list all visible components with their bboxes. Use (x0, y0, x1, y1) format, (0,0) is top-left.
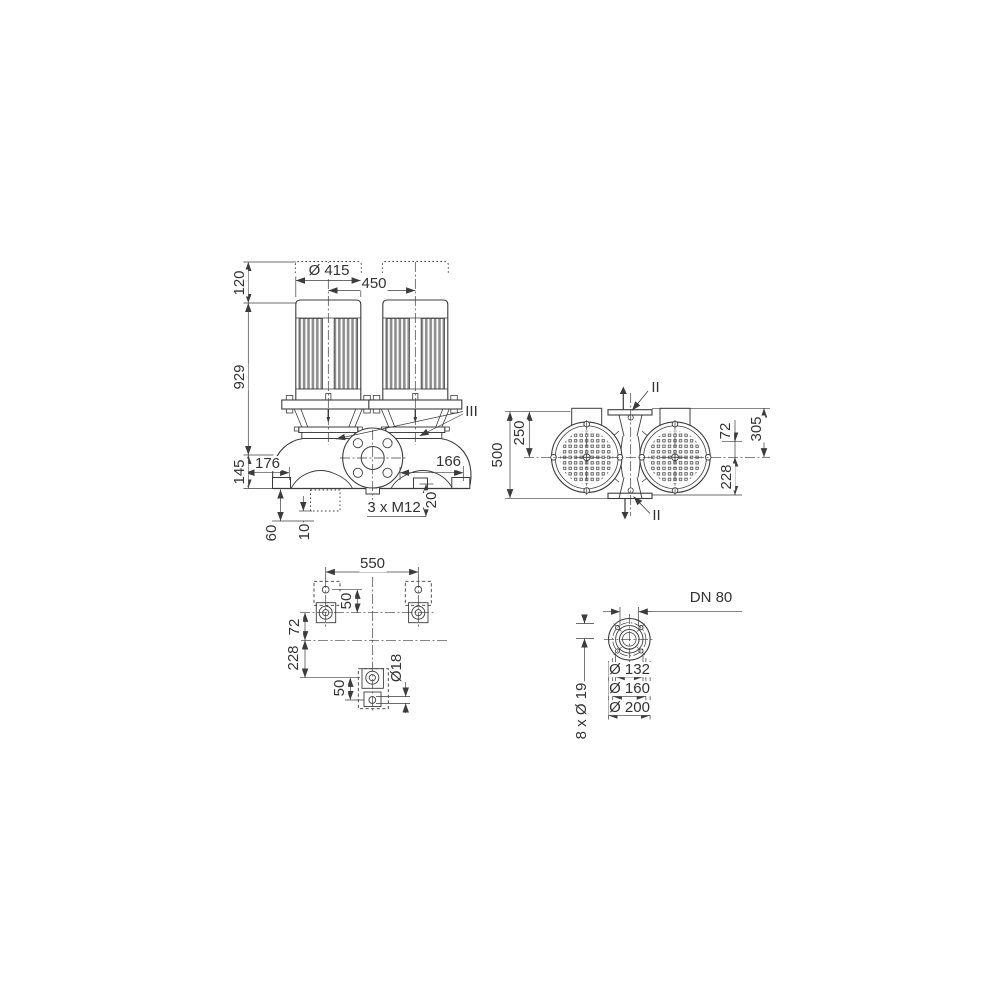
dim-axis-to-front-foot: 228 (286, 644, 302, 671)
top-view-drawing (505, 387, 770, 520)
dim-motor-spacing: 450 (360, 276, 387, 292)
dim-overall-width: 500 (490, 441, 506, 468)
dim-axis-to-foot: 228 (719, 463, 735, 490)
dim-offset-right: 166 (435, 454, 462, 470)
dim-motor-height: 929 (232, 363, 248, 390)
dim-motor-diameter: Ø 415 (308, 263, 351, 279)
dim-base-height: 145 (232, 458, 248, 485)
drawing-canvas (0, 0, 1000, 1000)
dim-raised-face-diameter: Ø 132 (608, 662, 651, 678)
section-label-III: III (464, 404, 479, 420)
dim-drain-offset2: 10 (297, 523, 313, 542)
top-port-flange (608, 410, 652, 415)
dim-axis-offset-plan: 72 (287, 617, 303, 636)
flange-dimensions (576, 607, 742, 720)
label-nominal-diameter: DN 80 (689, 590, 734, 606)
section-label-II-bottom: II (651, 508, 661, 524)
bottom-port-flange (608, 493, 652, 498)
dim-hole-diameter: Ø18 (389, 652, 405, 682)
dim-foot-threads: 3 x M12 (366, 500, 421, 516)
pump-dimensional-drawing: 120 929 145 Ø 415 450 176 166 20 3 x M12… (0, 0, 1000, 1000)
foot-pad-front (358, 669, 388, 709)
foot-pad-left (314, 581, 340, 622)
section-label-II-top: II (650, 380, 660, 396)
dim-bolt-circle-diameter: Ø 160 (608, 681, 651, 697)
dim-axis-offset: 72 (718, 421, 734, 440)
clearance-box (311, 490, 341, 511)
front-elevation-drawing (244, 262, 471, 528)
dim-center-to-edge: 250 (512, 419, 528, 446)
dim-outer-diameter: Ø 200 (608, 700, 651, 716)
dim-hole-spacing-top: 50 (339, 592, 355, 611)
dim-foot-thread-depth: 20 (424, 490, 440, 509)
dim-offset-left: 176 (254, 456, 281, 472)
pump-foot-mid (414, 478, 428, 489)
pump-foot-left (273, 478, 291, 489)
flange-detail-drawing (576, 607, 742, 720)
dim-hole-spacing-bottom: 50 (332, 679, 348, 698)
dim-bolt-spacing: 550 (359, 556, 386, 572)
dim-flange-to-axis: 305 (749, 415, 765, 442)
foundation-plan-drawing (300, 567, 448, 713)
dim-drain-offset: 60 (264, 523, 280, 542)
pump-foot-right (452, 478, 470, 489)
dim-bolt-holes: 8 x Ø 19 (574, 681, 590, 740)
dim-clearance-height: 120 (232, 269, 248, 296)
